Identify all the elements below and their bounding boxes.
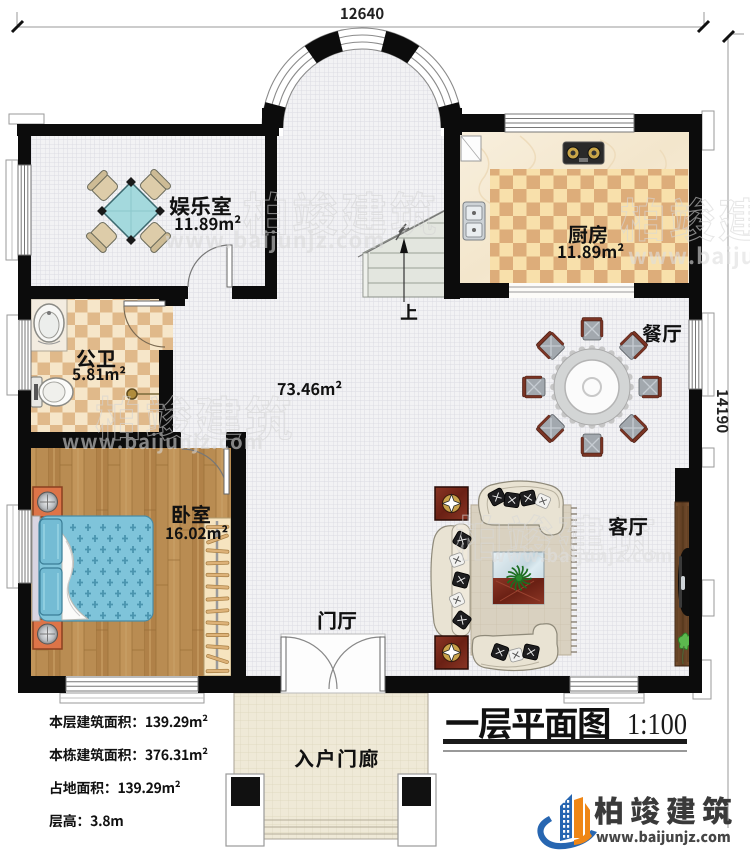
svg-text:1:100: 1:100 [627, 706, 687, 741]
